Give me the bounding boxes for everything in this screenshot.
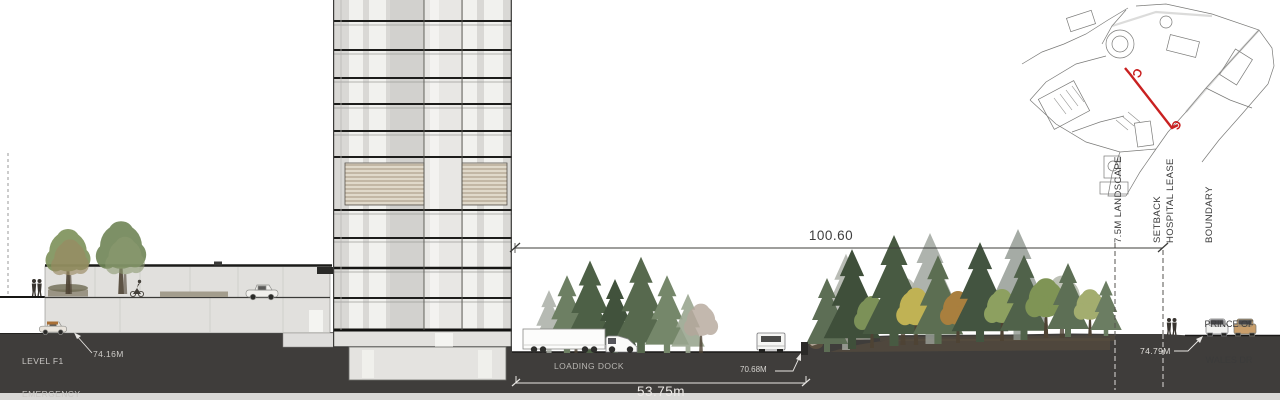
level-f1-line1: LEVEL F1 <box>22 356 80 367</box>
setback-line1: 7.5M LANDSCAPE <box>1112 143 1125 243</box>
lease-boundary-label: HOSPITAL LEASE BOUNDARY <box>1138 143 1229 243</box>
louver-band <box>462 163 507 205</box>
dimension-100-60 <box>510 243 1168 253</box>
planter <box>160 292 228 298</box>
dimension-loading-dock-text: 53.75m <box>626 384 696 399</box>
dimension-overall-text: 100.60 <box>796 228 866 243</box>
section-drawing: LEVEL F1 EMERGENCY PARKING 74.16M LOADIN… <box>0 0 1280 400</box>
retaining-wall <box>801 342 808 355</box>
plaza-figures <box>32 279 42 296</box>
boundary-line2: BOUNDARY <box>1203 143 1216 243</box>
elevation-dock: 70.68M <box>740 365 767 374</box>
boundary-line1: HOSPITAL LEASE <box>1164 143 1177 243</box>
front-truck <box>757 333 785 352</box>
level-f1-label: LEVEL F1 EMERGENCY PARKING <box>22 334 80 400</box>
road-label-line2: WALES DR <box>1198 354 1260 366</box>
roof-vent <box>214 262 222 266</box>
louver-band <box>345 163 424 205</box>
elevation-road: 74.79M <box>1140 346 1171 357</box>
level-f1-line2: EMERGENCY <box>22 389 80 400</box>
road-label-line1: PRINCE OF <box>1198 318 1260 330</box>
elevation-parking: 74.16M <box>93 349 124 360</box>
loading-dock-label: LOADING DOCK <box>554 361 624 372</box>
road-figures <box>1167 318 1177 335</box>
prince-of-wales-label: PRINCE OF WALES DR <box>1198 294 1260 378</box>
tower-section <box>333 0 512 380</box>
